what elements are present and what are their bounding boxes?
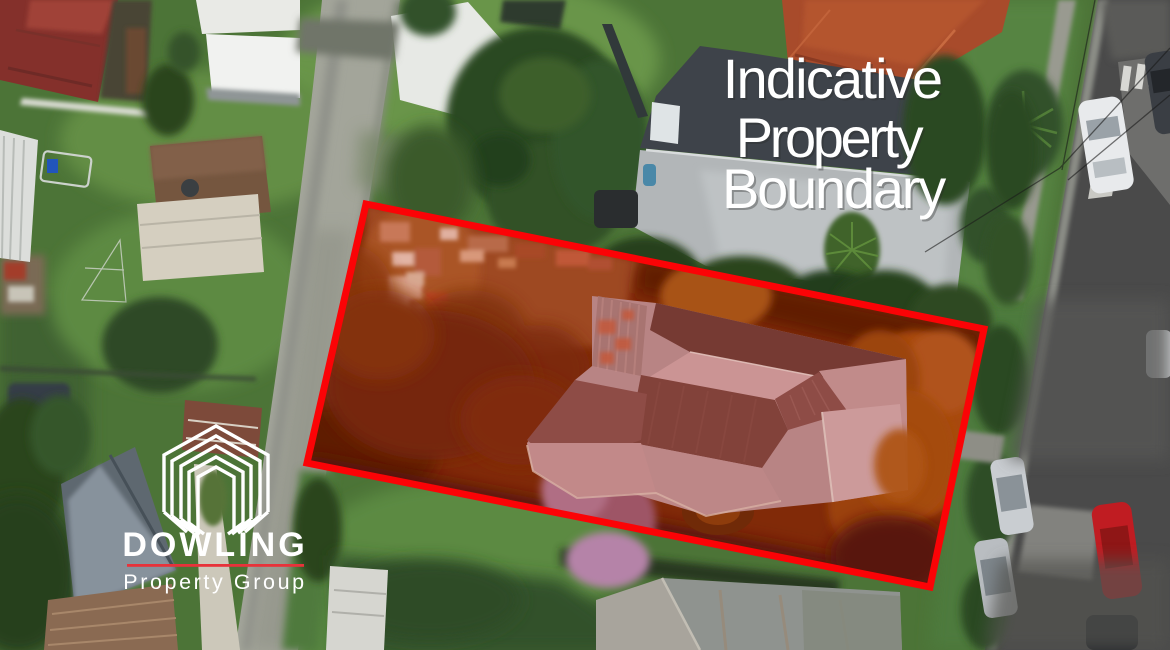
- svg-text:DOWLING: DOWLING: [122, 526, 307, 564]
- svg-text:Indicative: Indicative: [723, 47, 942, 110]
- svg-text:Property Group: Property Group: [123, 570, 306, 594]
- svg-text:Boundary: Boundary: [722, 157, 946, 220]
